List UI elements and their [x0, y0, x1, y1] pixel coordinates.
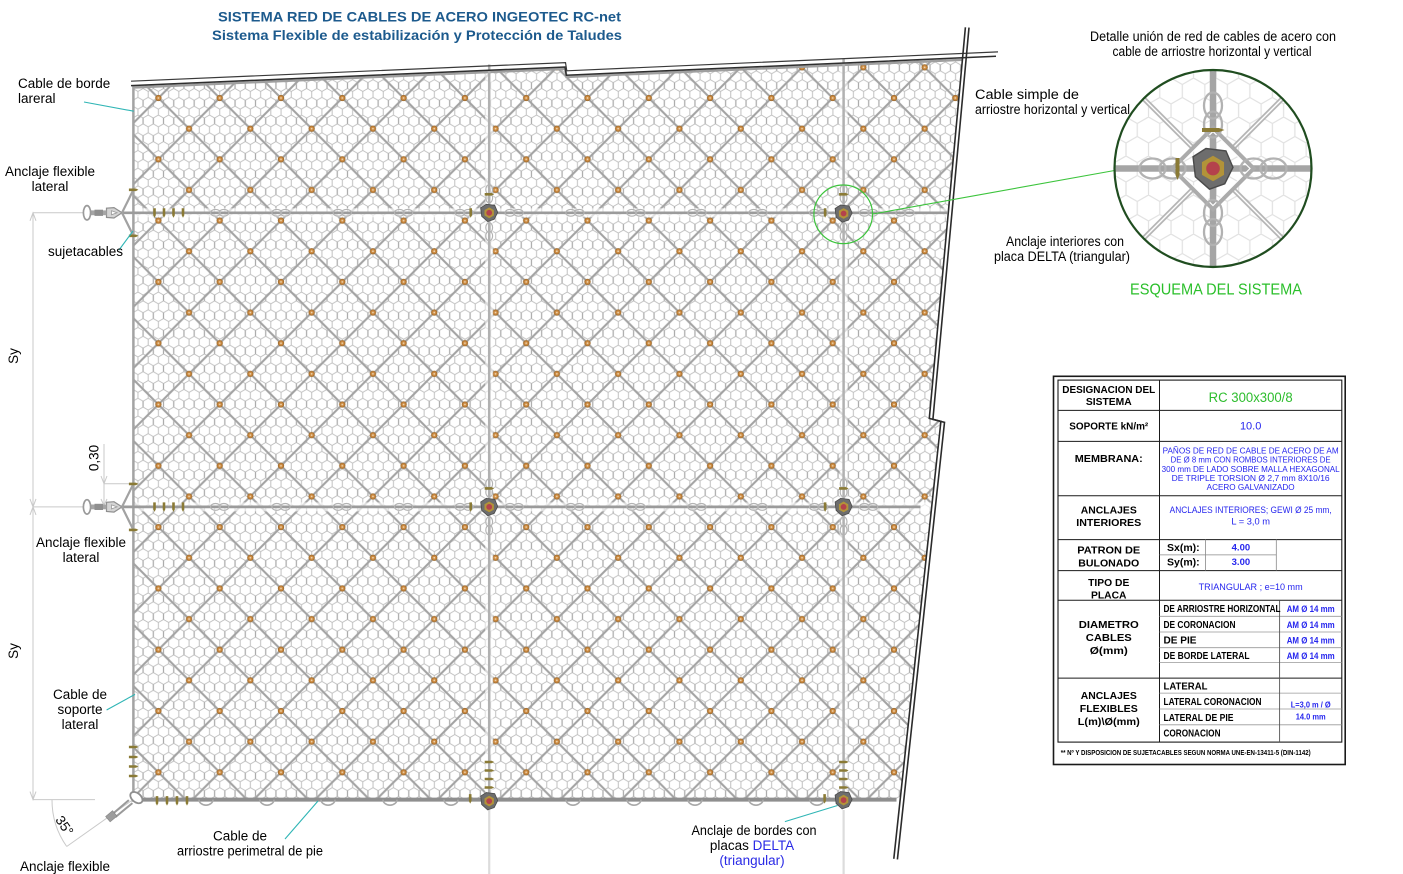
svg-text:Sy: Sy: [6, 348, 21, 364]
svg-text:L=3,0 m / Ø: L=3,0 m / Ø: [1291, 700, 1331, 710]
svg-text:DE BORDE LATERAL: DE BORDE LATERAL: [1164, 651, 1250, 662]
svg-text:MEMBRANA:: MEMBRANA:: [1075, 454, 1143, 465]
svg-text:Anclaje interiores con: Anclaje interiores con: [1006, 234, 1124, 249]
svg-text:RC 300x300/8: RC 300x300/8: [1209, 390, 1293, 405]
svg-text:TIPO DE: TIPO DE: [1088, 578, 1129, 589]
svg-text:SISTEMA: SISTEMA: [1086, 397, 1132, 408]
svg-text:CORONACION: CORONACION: [1164, 729, 1221, 740]
svg-text:AM Ø 14 mm: AM Ø 14 mm: [1287, 651, 1335, 662]
svg-text:DE ARRIOSTRE HORIZONTAL: DE ARRIOSTRE HORIZONTAL: [1164, 604, 1281, 615]
svg-text:TRIANGULAR ; e=10 mm: TRIANGULAR ; e=10 mm: [1199, 582, 1303, 592]
svg-text:Anclaje flexible: Anclaje flexible: [36, 535, 126, 550]
svg-text:Ø(mm): Ø(mm): [1090, 646, 1128, 657]
svg-text:DE PIE: DE PIE: [1164, 635, 1197, 646]
svg-text:AM Ø 14 mm: AM Ø 14 mm: [1287, 604, 1335, 615]
svg-text:Cable de: Cable de: [53, 687, 107, 702]
svg-text:soporte: soporte: [57, 702, 102, 717]
svg-text:lateral: lateral: [32, 179, 69, 194]
svg-text:placa DELTA (triangular): placa DELTA (triangular): [994, 249, 1130, 264]
svg-text:sujetacables: sujetacables: [48, 244, 123, 259]
svg-text:10.0: 10.0: [1240, 420, 1261, 432]
svg-text:DE TRIPLE TORSION Ø 2,7 mm 8X: DE TRIPLE TORSION Ø 2,7 mm 8X10/16: [1172, 474, 1330, 483]
svg-text:SISTEMA RED DE CABLES DE ACERO: SISTEMA RED DE CABLES DE ACERO INGEOTEC …: [218, 9, 621, 25]
svg-text:4.00: 4.00: [1232, 543, 1251, 554]
svg-text:ANCLAJES: ANCLAJES: [1081, 691, 1137, 702]
svg-text:FLEXIBLES: FLEXIBLES: [1080, 704, 1138, 715]
svg-text:Anclaje de bordes con: Anclaje de bordes con: [692, 823, 817, 838]
svg-text:14.0 mm: 14.0 mm: [1296, 712, 1326, 722]
svg-text:PAÑOS DE RED DE CABLE DE ACERO: PAÑOS DE RED DE CABLE DE ACERO DE AM: [1163, 446, 1339, 456]
svg-text:PATRON DE: PATRON DE: [1077, 546, 1140, 557]
svg-text:AM Ø 14 mm: AM Ø 14 mm: [1287, 635, 1335, 646]
svg-text:35°: 35°: [52, 813, 76, 838]
svg-text:DIAMETRO: DIAMETRO: [1079, 620, 1139, 631]
svg-text:Sx(m):: Sx(m):: [1167, 542, 1200, 554]
svg-text:(triangular): (triangular): [719, 853, 784, 868]
svg-text:ANCLAJES: ANCLAJES: [1081, 506, 1137, 517]
svg-text:L = 3,0 m: L = 3,0 m: [1231, 517, 1270, 527]
svg-text:0,30: 0,30: [87, 445, 102, 471]
svg-text:AM Ø 14 mm: AM Ø 14 mm: [1287, 620, 1335, 631]
svg-text:cable de arriostre horizontal: cable de arriostre horizontal y vertical: [1113, 44, 1312, 59]
svg-text:ACERO GALVANIZADO: ACERO GALVANIZADO: [1207, 483, 1295, 492]
svg-text:Cable simple de: Cable simple de: [975, 87, 1079, 102]
svg-text:Detalle unión de red de cables: Detalle unión de red de cables de acero …: [1090, 29, 1336, 44]
svg-text:Anclaje flexible: Anclaje flexible: [20, 859, 110, 874]
svg-text:ESQUEMA DEL SISTEMA: ESQUEMA DEL SISTEMA: [1130, 282, 1303, 299]
svg-text:LATERAL: LATERAL: [1164, 681, 1208, 692]
svg-text:INTERIORES: INTERIORES: [1076, 518, 1141, 529]
svg-text:Sistema Flexible de estabiliza: Sistema Flexible de estabilización y Pro…: [212, 27, 622, 43]
svg-text:lateral: lateral: [63, 550, 100, 565]
svg-text:LATERAL DE PIE: LATERAL DE PIE: [1164, 713, 1234, 724]
svg-text:DE Ø 8 mm CON ROMBOS INTERIORE: DE Ø 8 mm CON ROMBOS INTERIORES DE: [1171, 456, 1331, 465]
svg-text:Sy: Sy: [6, 643, 21, 659]
svg-text:Cable de borde: Cable de borde: [18, 76, 110, 91]
svg-text:BULONADO: BULONADO: [1078, 559, 1139, 570]
svg-text:Anclaje flexible: Anclaje flexible: [5, 164, 95, 179]
svg-text:3.00: 3.00: [1232, 557, 1251, 568]
svg-text:SOPORTE kN/m²: SOPORTE kN/m²: [1069, 421, 1149, 432]
svg-text:CABLES: CABLES: [1086, 633, 1132, 644]
svg-text:PLACA: PLACA: [1091, 591, 1127, 602]
svg-text:Sy(m):: Sy(m):: [1167, 557, 1200, 569]
svg-text:arriostre horizontal y vertica: arriostre horizontal y vertical: [975, 102, 1130, 117]
svg-text:lateral: lateral: [62, 717, 99, 732]
svg-text:DE CORONACION: DE CORONACION: [1164, 620, 1236, 631]
svg-text:lareral: lareral: [18, 91, 56, 106]
svg-text:** Nº Y DISPOSICION DE SUJETAC: ** Nº Y DISPOSICION DE SUJETACABLES SEGU…: [1061, 748, 1312, 757]
svg-text:DESIGNACION DEL: DESIGNACION DEL: [1062, 385, 1155, 396]
svg-text:Cable de: Cable de: [213, 829, 267, 844]
svg-text:L(m)\Ø(mm): L(m)\Ø(mm): [1078, 717, 1140, 728]
svg-text:arriostre perimetral de pie: arriostre perimetral de pie: [177, 844, 323, 859]
svg-text:LATERAL CORONACION: LATERAL CORONACION: [1164, 697, 1262, 708]
svg-text:ANCLAJES INTERIORES; GEWI Ø 25: ANCLAJES INTERIORES; GEWI Ø 25 mm,: [1170, 505, 1332, 515]
svg-text:300 mm DE LADO SOBRE MALLA HEX: 300 mm DE LADO SOBRE MALLA HEXAGONAL: [1162, 465, 1340, 474]
svg-text:placas DELTA: placas DELTA: [710, 838, 794, 853]
